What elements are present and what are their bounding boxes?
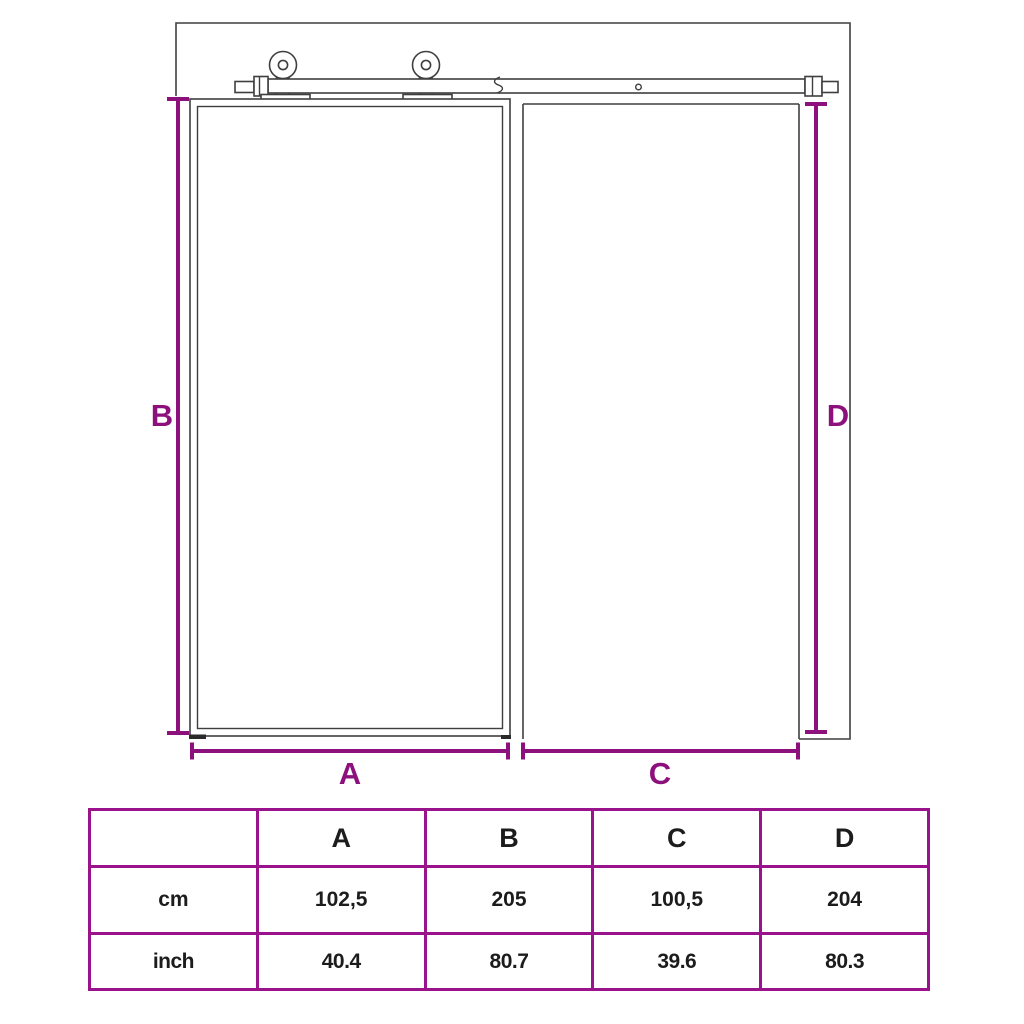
table-header-empty [90,810,258,867]
cell-cm-a: 102,5 [257,867,425,934]
door-floor-guide-right [501,735,511,739]
cell-inch-d: 80.3 [761,934,929,990]
rail-end-cap-left [254,77,268,97]
dimension-label-d: D [827,398,849,433]
table-header-a: A [257,810,425,867]
table-header-d: D [761,810,929,867]
roller-hub-right [421,60,430,69]
dimension-line-a: A [192,743,508,792]
dimension-label-a: A [339,756,361,791]
rail-end-bolt-right [822,82,838,93]
dimension-label-b: B [151,398,173,433]
roller-hub-left [278,60,287,69]
table-row-inch: inch 40.4 80.7 39.6 80.3 [90,934,929,990]
door-floor-guide-left [189,735,206,740]
table-header-b: B [425,810,593,867]
sliding-rail [235,58,838,96]
table-row-cm: cm 102,5 205 100,5 204 [90,867,929,934]
cell-inch-c: 39.6 [593,934,761,990]
dimension-label-c: C [649,756,671,791]
dimension-line-d: D [805,104,849,732]
sliding-door-dimension-sheet: A B C D A B [0,0,1024,1024]
cell-inch-b: 80.7 [425,934,593,990]
cell-inch-a: 40.4 [257,934,425,990]
rail-end-bolt-left [235,82,254,93]
cell-cm-b: 205 [425,867,593,934]
table-header-c: C [593,810,761,867]
cell-cm-c: 100,5 [593,867,761,934]
cell-cm-d: 204 [761,867,929,934]
dimension-line-b: B [151,99,189,733]
row-label-inch: inch [90,934,258,990]
row-label-cm: cm [90,867,258,934]
dimension-line-c: C [523,743,798,792]
rail-bar [268,79,805,93]
door-panel [189,99,511,739]
table-header-row: A B C D [90,810,929,867]
dimensions-table: A B C D cm 102,5 205 100,5 204 inch 40.4… [88,808,930,991]
rail-end-cap-right [805,77,822,97]
